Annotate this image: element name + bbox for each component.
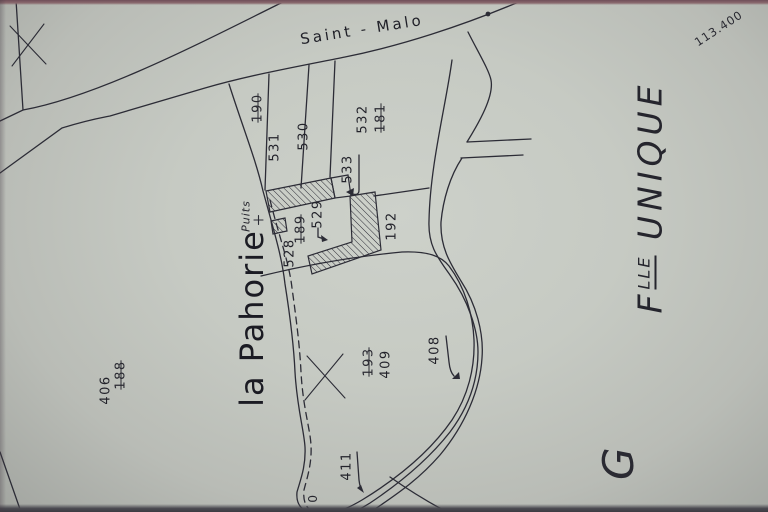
parcel-number-533: 533 xyxy=(342,154,355,183)
former-parcel-number-189: 189 xyxy=(295,214,308,243)
cadastral-map-photo: Saint - Malo 113.400 la Pahorie Puits FL… xyxy=(0,0,768,512)
former-parcel-number-190: 190 xyxy=(252,93,265,122)
parcel-number-408: 408 xyxy=(429,335,442,364)
parcel-number-530: 530 xyxy=(298,121,311,150)
leader-408 xyxy=(446,336,454,376)
sheet-title-flle-unique: FLLE UNIQUE xyxy=(634,81,667,314)
parcel-number-531: 531 xyxy=(269,132,282,161)
parcel-number-192: 192 xyxy=(386,211,399,240)
sheet-title-f: F xyxy=(631,290,670,314)
parcel-number-532: 532 xyxy=(357,104,370,133)
sheet-title-sup: LLE xyxy=(635,256,657,290)
boundary-x-mark-center xyxy=(305,354,345,400)
road-saintmalo-lower-edge xyxy=(0,1,521,173)
road-fork-branch xyxy=(461,139,531,158)
leader-411 xyxy=(357,452,362,490)
arrowhead-529 xyxy=(321,235,328,242)
boundary-topleft xyxy=(16,0,23,110)
former-parcel-number-188: 188 xyxy=(115,360,128,389)
map-point-dot xyxy=(486,12,491,17)
parcel-number-411: 411 xyxy=(341,451,354,480)
section-letter-g: G xyxy=(598,446,640,480)
parcel-number-409: 409 xyxy=(380,349,393,378)
parcel-line-532-192 xyxy=(374,188,429,196)
boundary-x-mark-topleft xyxy=(10,24,46,66)
road-saintmalo-upper-edge xyxy=(0,2,283,121)
photo-edge-left xyxy=(0,0,6,512)
photo-edge-top xyxy=(0,0,768,5)
parcel-number-406: 406 xyxy=(100,375,113,404)
road-east-east-edge-upper xyxy=(467,32,491,142)
arrowhead-411 xyxy=(357,485,364,493)
parcel-number-partial: 0 xyxy=(307,493,319,502)
former-parcel-number-181: 181 xyxy=(375,103,388,132)
parcel-number-529: 529 xyxy=(312,199,325,228)
parcel-line-530-532 xyxy=(330,61,335,177)
photo-edge-bottom xyxy=(0,504,768,512)
sheet-title-unique: UNIQUE xyxy=(631,81,670,241)
locality-name-la-pahorie: la Pahorie xyxy=(236,229,268,407)
building-hatched-well-hut xyxy=(271,218,287,234)
well-label-puits: Puits xyxy=(241,200,252,232)
well-cross-symbol xyxy=(254,216,263,225)
parcel-boundary-courtyard-south xyxy=(261,252,474,512)
former-parcel-number-193: 193 xyxy=(363,347,376,376)
